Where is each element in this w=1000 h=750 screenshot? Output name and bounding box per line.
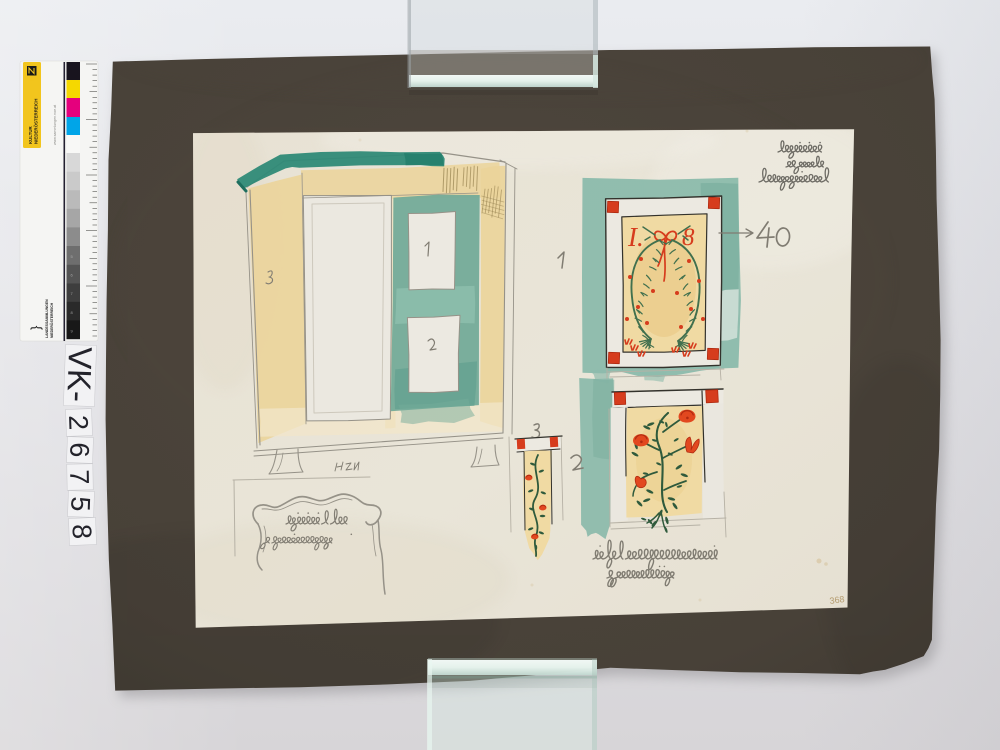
svg-text:NIEDERÖSTERREICH: NIEDERÖSTERREICH: [34, 99, 39, 144]
svg-text:NIEDERÖSTERREICH: NIEDERÖSTERREICH: [49, 302, 54, 338]
svg-text:N: N: [28, 76, 35, 81]
svg-text:6: 6: [64, 442, 95, 458]
svg-text:}: }: [28, 325, 43, 330]
svg-text:I.: I.: [627, 222, 644, 252]
svg-text:LANDESSAMMLUNGEN: LANDESSAMMLUNGEN: [45, 299, 49, 338]
svg-text:7: 7: [64, 469, 94, 485]
svg-text:KULTUR: KULTUR: [28, 125, 33, 144]
svg-text:2: 2: [63, 415, 94, 431]
svg-text:VK-: VK-: [60, 346, 99, 402]
svg-text:5: 5: [65, 496, 96, 512]
svg-text:www.sammlungen.noe.at: www.sammlungen.noe.at: [53, 105, 57, 145]
svg-text:8: 8: [67, 524, 98, 540]
svg-text:368: 368: [829, 594, 845, 606]
